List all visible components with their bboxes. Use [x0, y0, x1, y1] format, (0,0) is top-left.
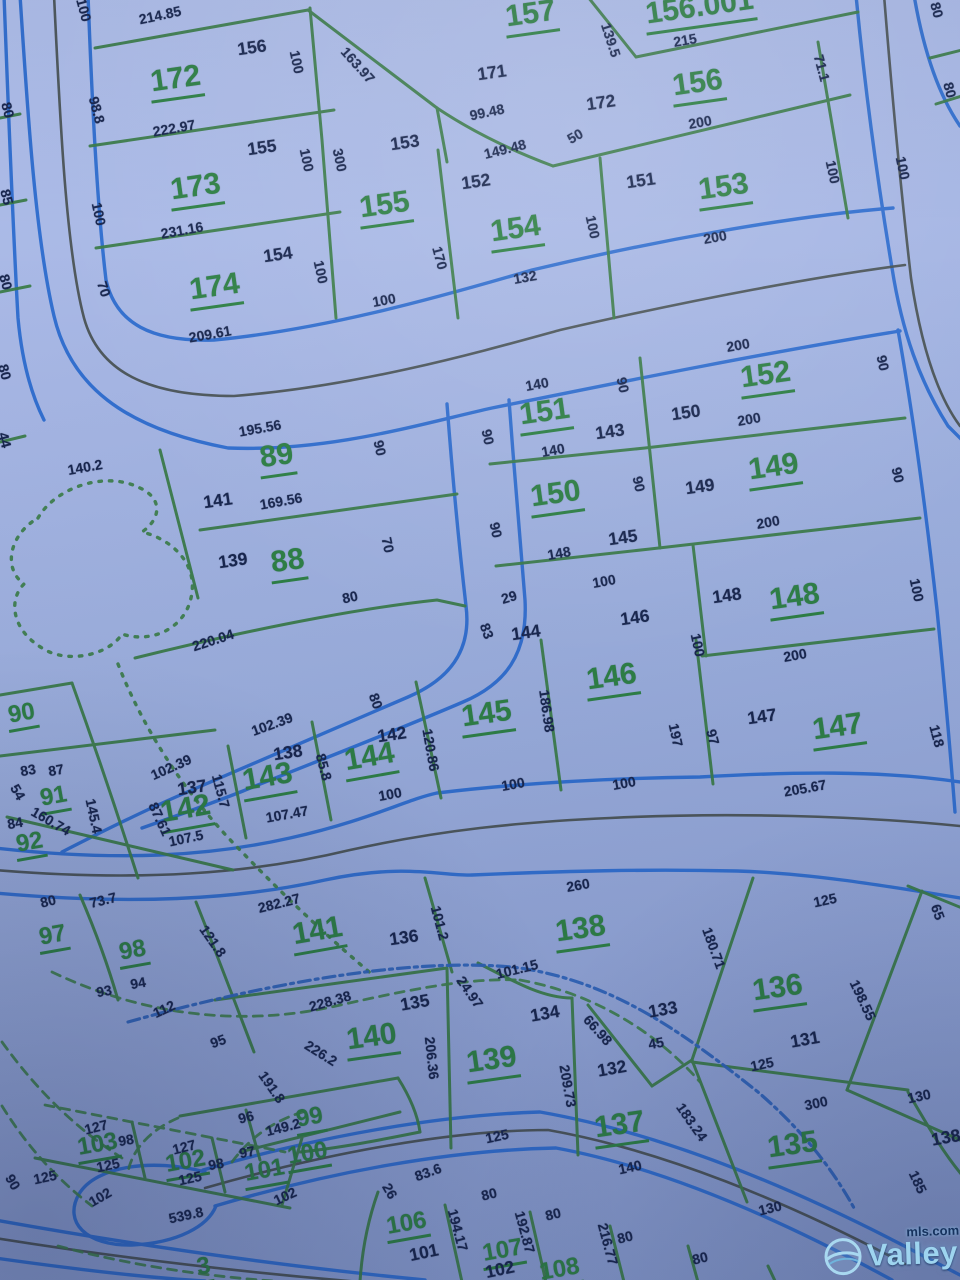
- lot-label: 90: [4, 699, 39, 733]
- dim-label: 102: [271, 1185, 298, 1208]
- dim-label: 107.47: [265, 803, 310, 824]
- dim-label: 300: [803, 1094, 829, 1113]
- dim-label: 186.98: [537, 689, 557, 733]
- dim-label: 90: [488, 521, 505, 539]
- dim-label: 101: [408, 1241, 440, 1264]
- dim-label: 90: [480, 428, 497, 446]
- dim-label: 200: [687, 113, 712, 131]
- dim-label: 140: [540, 441, 565, 459]
- dim-label: 84: [6, 815, 24, 831]
- dim-label: 260: [565, 876, 590, 894]
- lot-label: 108: [536, 1254, 584, 1280]
- dim-label: 139.5: [599, 21, 623, 59]
- dim-label: 170: [430, 245, 450, 271]
- dim-label: 90: [875, 354, 892, 372]
- dim-label: 195.56: [238, 417, 283, 438]
- dim-label: 172: [585, 92, 616, 113]
- dim-label: 85: [0, 188, 16, 207]
- dim-label: 140: [617, 1158, 643, 1177]
- dim-label: 101.2: [429, 904, 452, 941]
- dim-label: 163.97: [338, 44, 377, 85]
- lot-label: 101: [241, 1155, 289, 1191]
- dim-label: 121.8: [197, 923, 229, 960]
- map-labels-layer: 172173174155154157156.001156153152151150…: [0, 0, 960, 1280]
- lot-label: 151: [516, 393, 575, 436]
- dim-label: 80: [941, 81, 959, 100]
- dim-label: 94: [129, 975, 147, 991]
- dim-label: 125: [32, 1168, 58, 1187]
- lot-label: 97: [35, 921, 70, 955]
- lot-label: 155: [356, 186, 415, 229]
- globe-swoosh-icon: [821, 1235, 864, 1278]
- dim-label: 154: [262, 244, 293, 265]
- dim-label: 130: [757, 1198, 783, 1217]
- dim-label: 70: [380, 536, 397, 554]
- dim-label: 97: [704, 728, 722, 747]
- dim-label: 200: [736, 410, 761, 428]
- dim-label: 185: [907, 1168, 930, 1195]
- lot-label: 138: [552, 910, 611, 953]
- dim-label: 149: [684, 476, 715, 497]
- dim-label: 102: [484, 1258, 516, 1280]
- dim-label: 83: [19, 762, 37, 778]
- dim-label: 150: [670, 402, 701, 423]
- dim-label: 140: [524, 375, 549, 393]
- dim-label: 80: [0, 101, 17, 120]
- dim-label: 180.71: [700, 925, 728, 970]
- dim-label: 44: [0, 431, 14, 450]
- lot-label: 152: [737, 356, 796, 399]
- dim-label: 100: [908, 577, 927, 603]
- dim-label: 125: [177, 1169, 203, 1188]
- dim-label: 120.86: [420, 728, 441, 773]
- dim-label: 97: [238, 1144, 256, 1160]
- lot-label: 153: [695, 168, 754, 211]
- dim-label: 300: [331, 147, 350, 173]
- dim-label: 100: [377, 785, 402, 803]
- dim-label: 156: [236, 37, 267, 58]
- dim-label: 96: [237, 1108, 256, 1125]
- lot-label: 141: [288, 912, 347, 957]
- lot-label: 150: [527, 475, 586, 518]
- dim-label: 282.27: [257, 891, 302, 915]
- dim-label: 24.97: [454, 974, 486, 1011]
- dim-label: 226.2: [302, 1038, 339, 1068]
- lot-label: 106: [383, 1208, 431, 1244]
- dim-label: 80: [480, 1185, 499, 1202]
- dim-label: 95: [208, 1032, 227, 1050]
- dim-label: 100: [894, 155, 913, 181]
- dim-label: 83.6: [413, 1161, 443, 1183]
- dim-label: 125: [749, 1055, 775, 1074]
- dim-label: 98: [117, 1132, 135, 1148]
- dim-label: 100: [74, 0, 94, 23]
- dim-label: 137: [176, 777, 207, 798]
- dim-label: 145.4: [84, 797, 105, 834]
- dim-label: 100: [312, 259, 331, 285]
- dim-label: 70: [95, 279, 113, 298]
- dim-label: 209.73: [557, 1064, 578, 1109]
- dim-label: 93: [95, 983, 113, 999]
- dim-label: 112: [151, 998, 177, 1020]
- dim-label: 144: [510, 622, 541, 643]
- dim-label: 125: [484, 1127, 510, 1146]
- lot-label: 172: [147, 60, 206, 103]
- dim-label: 139: [217, 550, 248, 571]
- dim-label: 115.7: [210, 773, 232, 810]
- dim-label: 125: [812, 891, 838, 910]
- dim-label: 171: [476, 62, 507, 83]
- lot-label: 156: [669, 64, 728, 107]
- dim-label: 102: [86, 1185, 113, 1209]
- dim-label: 90: [615, 376, 632, 394]
- dim-label: 141: [202, 490, 233, 511]
- dim-label: 100: [90, 201, 109, 227]
- lot-label: 135: [764, 1126, 823, 1169]
- dim-label: 216.77: [596, 1222, 621, 1267]
- dim-label: 140.2: [67, 457, 104, 477]
- dim-label: 80: [928, 1, 946, 20]
- dim-label: 153: [389, 132, 420, 153]
- logo-suffix-text: mls.com: [906, 1223, 959, 1240]
- dim-label: 134: [529, 1003, 561, 1025]
- dim-label: 149.48: [483, 137, 528, 161]
- dim-label: 220.04: [190, 627, 235, 654]
- dim-label: 133: [647, 999, 679, 1021]
- lot-label: 136: [749, 969, 808, 1012]
- lot-label: 156.001: [642, 0, 758, 36]
- lot-label: 146: [583, 658, 642, 701]
- dim-label: 206.36: [423, 1036, 441, 1080]
- dim-label: 125: [95, 1156, 121, 1175]
- dim-label: 194.17: [446, 1208, 471, 1253]
- dim-label: 215: [672, 31, 697, 49]
- dim-label: 100: [824, 159, 843, 185]
- dim-label: 152: [460, 171, 491, 192]
- dim-label: 29: [500, 588, 519, 606]
- dim-label: 228.38: [307, 988, 352, 1013]
- dim-label: 118: [927, 723, 946, 748]
- lot-label: 149: [745, 448, 804, 491]
- dim-label: 100: [500, 775, 525, 793]
- dim-label: 100: [611, 774, 636, 792]
- dim-label: 132: [512, 268, 537, 286]
- dim-label: 90: [890, 466, 907, 484]
- dim-label: 90: [631, 475, 648, 493]
- dim-label: 191.8: [256, 1069, 288, 1106]
- lot-label: 3: [193, 1253, 215, 1280]
- dim-label: 136: [388, 927, 419, 948]
- lot-label: 137: [591, 1106, 650, 1149]
- dim-label: 145: [607, 527, 638, 548]
- dim-label: 66.98: [581, 1012, 615, 1047]
- dim-label: 102.39: [249, 710, 294, 738]
- dim-label: 73.7: [88, 890, 118, 910]
- dim-label: 200: [725, 336, 750, 354]
- dim-label: 87: [47, 762, 65, 778]
- valleymls-logo: Valley mls.com: [821, 1232, 958, 1279]
- dim-label: 80: [0, 273, 15, 292]
- dim-label: 100: [288, 49, 307, 75]
- dim-label: 130: [906, 1087, 932, 1106]
- dim-label: 80: [341, 589, 359, 606]
- dim-label: 200: [702, 228, 727, 246]
- dim-label: 132: [596, 1058, 628, 1080]
- dim-label: 80: [39, 892, 58, 909]
- dim-label: 50: [565, 126, 585, 146]
- dim-label: 98.8: [87, 95, 108, 125]
- dim-label: 83: [478, 621, 496, 640]
- dim-label: 100: [584, 214, 603, 240]
- dim-label: 148: [711, 585, 742, 606]
- dim-label: 71.1: [812, 53, 833, 83]
- dim-label: 54: [8, 782, 28, 802]
- dim-label: 197: [667, 722, 686, 748]
- dim-label: 99.48: [468, 102, 505, 123]
- dim-label: 214.85: [138, 4, 183, 27]
- lot-label: 173: [167, 168, 226, 211]
- dim-label: 100: [371, 291, 396, 309]
- dim-label: 147: [746, 706, 777, 727]
- dim-label: 222.97: [152, 117, 197, 138]
- dim-label: 200: [782, 646, 807, 664]
- lot-label: 154: [487, 210, 546, 253]
- dim-label: 90: [372, 439, 389, 457]
- lot-label: 143: [238, 758, 297, 803]
- dim-label: 143: [594, 421, 625, 442]
- dim-label: 100: [591, 572, 616, 590]
- dim-label: 100: [689, 632, 708, 658]
- dim-label: 80: [616, 1228, 635, 1245]
- lot-label: 147: [809, 708, 868, 751]
- dim-label: 80: [0, 363, 14, 382]
- dim-label: 90: [3, 1172, 23, 1192]
- lot-label: 148: [766, 578, 825, 621]
- dim-label: 98: [207, 1156, 225, 1172]
- dim-label: 200: [755, 513, 780, 531]
- dim-label: 146: [619, 607, 650, 628]
- lot-label: 88: [267, 544, 309, 585]
- dim-label: 539.8: [167, 1205, 204, 1226]
- dim-label: 205.67: [783, 777, 828, 798]
- dim-label: 148: [546, 544, 571, 562]
- dim-label: 101.15: [495, 957, 540, 981]
- dim-label: 45: [647, 1035, 665, 1051]
- dim-label: 80: [367, 691, 385, 710]
- lot-label: 92: [12, 828, 47, 862]
- dim-label: 138: [272, 742, 303, 763]
- lot-label: 98: [115, 936, 150, 970]
- dim-label: 231.16: [160, 219, 205, 240]
- dim-label: 209.61: [188, 323, 233, 344]
- dim-label: 80: [544, 1205, 563, 1222]
- lot-label: 145: [458, 695, 517, 738]
- plat-map-photo: 172173174155154157156.001156153152151150…: [0, 0, 960, 1280]
- dim-label: 65: [929, 902, 947, 921]
- logo-text: Valley: [866, 1235, 958, 1274]
- dim-label: 142: [376, 724, 407, 745]
- dim-label: 80: [691, 1249, 710, 1266]
- lot-label: 174: [186, 268, 245, 311]
- dim-label: 138: [930, 1127, 960, 1149]
- dim-label: 135: [399, 992, 431, 1014]
- dim-label: 131: [789, 1029, 821, 1051]
- dim-label: 155: [246, 137, 277, 158]
- lot-label: 139: [463, 1041, 522, 1084]
- lot-label: 157: [502, 0, 561, 39]
- dim-label: 151: [625, 170, 656, 191]
- dim-label: 26: [380, 1181, 400, 1201]
- lot-label: 100: [284, 1138, 332, 1174]
- lot-label: 140: [343, 1018, 402, 1061]
- dim-label: 183.24: [674, 1100, 710, 1143]
- lot-label: 89: [256, 439, 298, 480]
- dim-label: 169.56: [259, 490, 304, 511]
- dim-label: 100: [298, 147, 317, 173]
- dim-label: 85.8: [314, 752, 335, 782]
- dim-label: 198.55: [848, 978, 879, 1023]
